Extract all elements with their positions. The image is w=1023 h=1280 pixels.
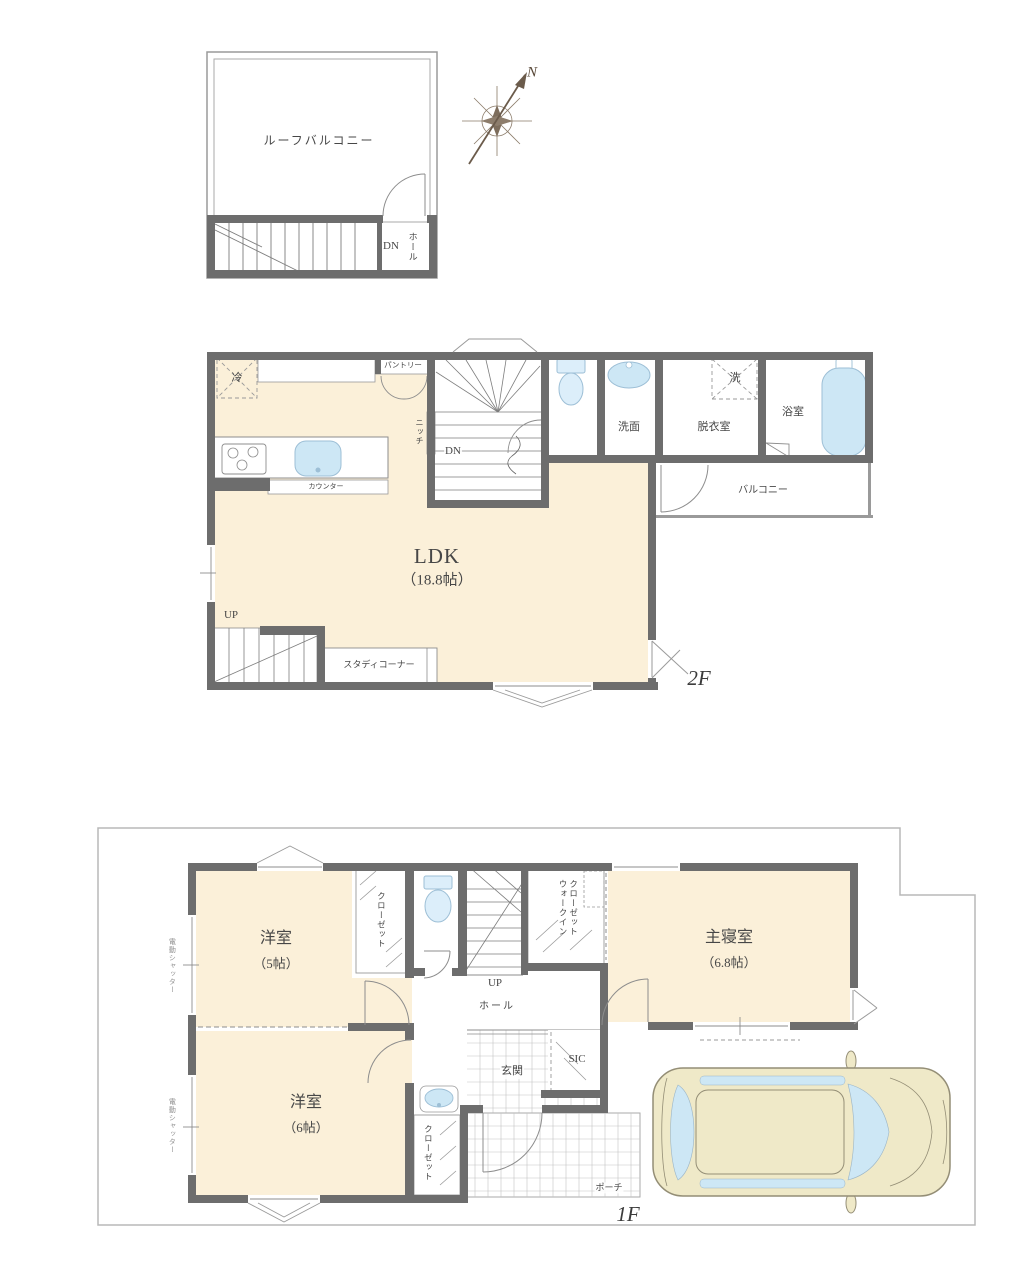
floor2-plan bbox=[200, 339, 873, 707]
floor2-stairwell bbox=[434, 356, 541, 504]
pantry-label: パントリー bbox=[384, 360, 422, 369]
floor2-label: 2F bbox=[687, 665, 710, 691]
floor1-hall-label: ホール bbox=[479, 1001, 515, 1014]
hand-basin-icon bbox=[420, 1086, 458, 1112]
bathtub-icon bbox=[822, 359, 866, 456]
floorplan-drawing bbox=[0, 0, 1023, 1280]
room5-size-label: （5帖） bbox=[253, 956, 299, 972]
porch-label: ポーチ bbox=[594, 1182, 623, 1193]
toilet2-icon bbox=[557, 359, 585, 405]
roof-balcony-label: ルーフバルコニー bbox=[263, 134, 374, 149]
floorplan-page: ルーフバルコニー DN ホール N 冷 パントリー ニッチ DN 洗面 洗 脱衣… bbox=[0, 0, 1023, 1280]
bathroom-label: 浴室 bbox=[782, 406, 804, 420]
room6-size-label: （6帖） bbox=[283, 1120, 329, 1136]
floor1-up-label: UP bbox=[488, 977, 502, 991]
master-bedroom-label: 主寝室 bbox=[705, 928, 753, 948]
study-corner-label: スタディコーナー bbox=[343, 659, 414, 670]
closet6-box bbox=[414, 1115, 460, 1195]
roof-hall-label: ホール bbox=[406, 232, 417, 262]
floor2-up-stairs bbox=[214, 628, 317, 684]
niche-label: ニッチ bbox=[414, 419, 424, 446]
closet6-label: クローゼット bbox=[423, 1125, 434, 1182]
room5-label: 洋室 bbox=[260, 929, 292, 949]
floor1-plan bbox=[98, 828, 975, 1225]
floor2-up-label: UP bbox=[224, 609, 238, 623]
dressing-room-label: 脱衣室 bbox=[698, 421, 731, 435]
entrance-label: 玄関 bbox=[500, 1065, 524, 1079]
toilet1-icon bbox=[424, 876, 452, 922]
fridge-label: 冷 bbox=[232, 372, 243, 386]
closet5-label: クローゼット bbox=[376, 892, 387, 949]
sic-label: SIC bbox=[568, 1053, 585, 1067]
kitchen-sink-icon bbox=[295, 441, 341, 476]
kitchen-cabinet bbox=[258, 359, 375, 382]
walk-in-closet-label: ウォークイン クローゼット bbox=[557, 880, 578, 937]
room6-area bbox=[196, 1031, 412, 1195]
counter-label: カウンター bbox=[309, 483, 344, 492]
master-bedroom-size-label: （6.8帖） bbox=[701, 955, 756, 971]
ldk-label: LDK bbox=[414, 543, 460, 569]
compass-north-label: N bbox=[527, 64, 537, 83]
roof-floor-plan bbox=[207, 52, 437, 278]
floor2-dn-label: DN bbox=[444, 445, 462, 459]
washbasin2-icon bbox=[608, 362, 650, 388]
shutter-label-1: 電動シャッター bbox=[168, 938, 177, 994]
balcony-rail bbox=[655, 515, 873, 518]
floor1-stairs bbox=[465, 863, 523, 975]
floor2-balcony-label: バルコニー bbox=[738, 485, 788, 498]
shutter-label-2: 電動シャッター bbox=[168, 1098, 177, 1154]
room6-label: 洋室 bbox=[290, 1093, 322, 1113]
car-icon bbox=[653, 1051, 950, 1213]
floor1-label: 1F bbox=[616, 1201, 639, 1227]
washer-label: 洗 bbox=[730, 372, 741, 386]
ldk-size-label: （18.8帖） bbox=[401, 572, 472, 591]
roof-dn-label: DN bbox=[383, 240, 399, 254]
washroom-label: 洗面 bbox=[618, 421, 640, 435]
compass-rose-icon bbox=[462, 72, 532, 164]
stove-icon bbox=[222, 444, 266, 474]
